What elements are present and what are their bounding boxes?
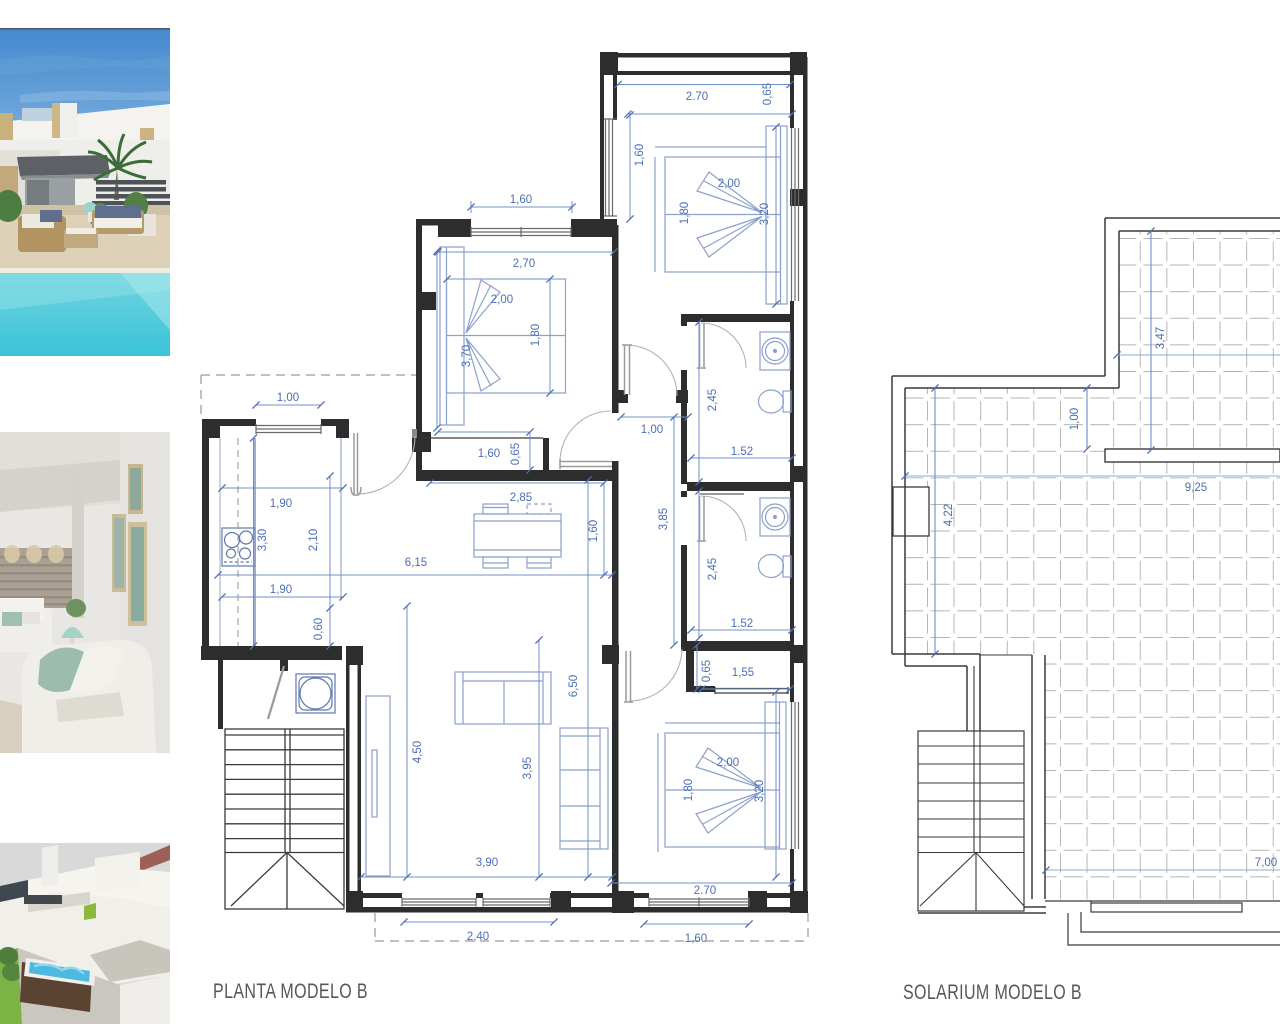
svg-text:1,80: 1,80 <box>679 202 691 224</box>
svg-text:3,20: 3,20 <box>754 780 766 802</box>
svg-text:2,10: 2,10 <box>308 529 320 551</box>
svg-text:4,50: 4,50 <box>412 741 424 763</box>
svg-text:2,45: 2,45 <box>707 389 719 411</box>
svg-text:1.52: 1.52 <box>731 618 753 630</box>
svg-text:1,60: 1,60 <box>588 520 600 542</box>
svg-text:2,00: 2,00 <box>718 178 740 190</box>
svg-text:0,65: 0,65 <box>510 443 522 465</box>
svg-text:2.70: 2.70 <box>686 91 708 103</box>
svg-text:1,00: 1,00 <box>1069 408 1081 430</box>
svg-text:0,65: 0,65 <box>701 660 713 682</box>
svg-text:1,90: 1,90 <box>270 498 292 510</box>
svg-text:3,85: 3,85 <box>658 508 670 530</box>
svg-text:1,60: 1,60 <box>634 144 646 166</box>
svg-text:9,25: 9,25 <box>1185 482 1207 494</box>
svg-text:1,60: 1,60 <box>685 933 707 945</box>
svg-text:2,00: 2,00 <box>491 294 513 306</box>
svg-text:PLANTA MODELO B: PLANTA MODELO B <box>213 980 368 1003</box>
svg-text:3,20: 3,20 <box>759 203 771 225</box>
svg-text:2,45: 2,45 <box>707 558 719 580</box>
svg-text:3,47: 3,47 <box>1155 327 1167 349</box>
svg-text:1.52: 1.52 <box>731 446 753 458</box>
svg-text:1,90: 1,90 <box>270 584 292 596</box>
svg-text:2,40: 2,40 <box>467 931 489 943</box>
svg-text:3,90: 3,90 <box>476 857 498 869</box>
svg-text:3,95: 3,95 <box>522 757 534 779</box>
svg-text:1,80: 1,80 <box>683 779 695 801</box>
svg-text:1,80: 1,80 <box>530 324 542 346</box>
svg-text:6,50: 6,50 <box>568 675 580 697</box>
svg-text:0,65: 0,65 <box>762 83 774 105</box>
svg-text:1,55: 1,55 <box>732 667 754 679</box>
svg-text:6,15: 6,15 <box>405 557 427 569</box>
svg-text:2,85: 2,85 <box>510 492 532 504</box>
svg-text:3,30: 3,30 <box>257 529 269 551</box>
svg-text:1,00: 1,00 <box>277 392 299 404</box>
svg-text:4,22: 4,22 <box>943 504 955 526</box>
svg-text:SOLARIUM MODELO B: SOLARIUM MODELO B <box>903 981 1082 1004</box>
svg-text:2.70: 2.70 <box>694 885 716 897</box>
svg-text:1,60: 1,60 <box>510 194 532 206</box>
svg-text:1,00: 1,00 <box>641 424 663 436</box>
svg-text:1,60: 1,60 <box>478 448 500 460</box>
svg-text:7,00: 7,00 <box>1255 857 1277 869</box>
svg-text:0,60: 0,60 <box>313 618 325 640</box>
svg-text:2,70: 2,70 <box>513 258 535 270</box>
svg-text:2,00: 2,00 <box>717 757 739 769</box>
svg-text:3,70: 3,70 <box>461 345 473 367</box>
